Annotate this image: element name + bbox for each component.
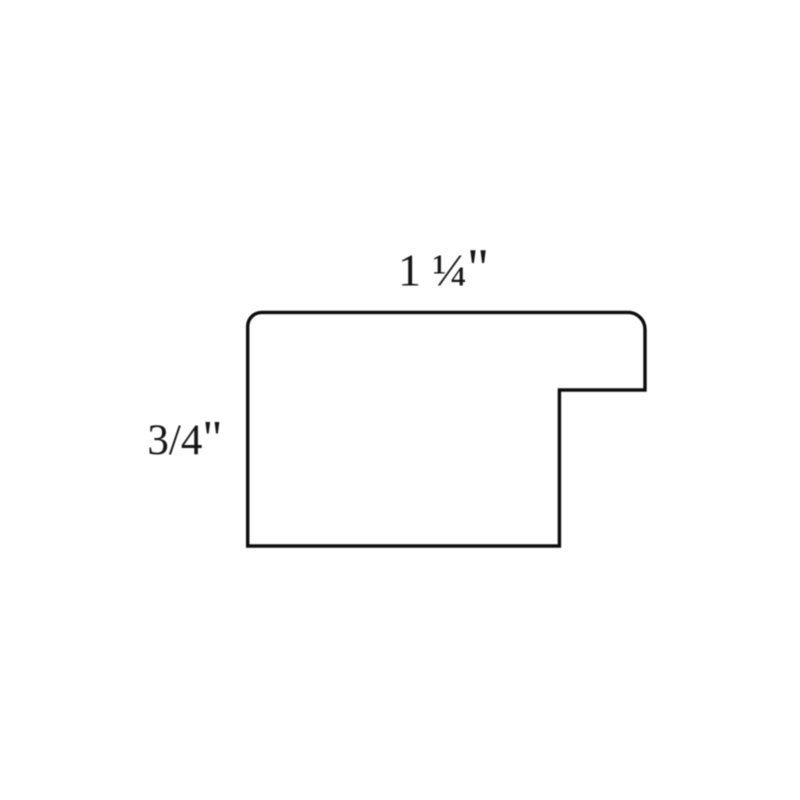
svg-text:1 ¼": 1 ¼" [398, 237, 489, 297]
svg-text:3/4": 3/4" [147, 410, 222, 465]
